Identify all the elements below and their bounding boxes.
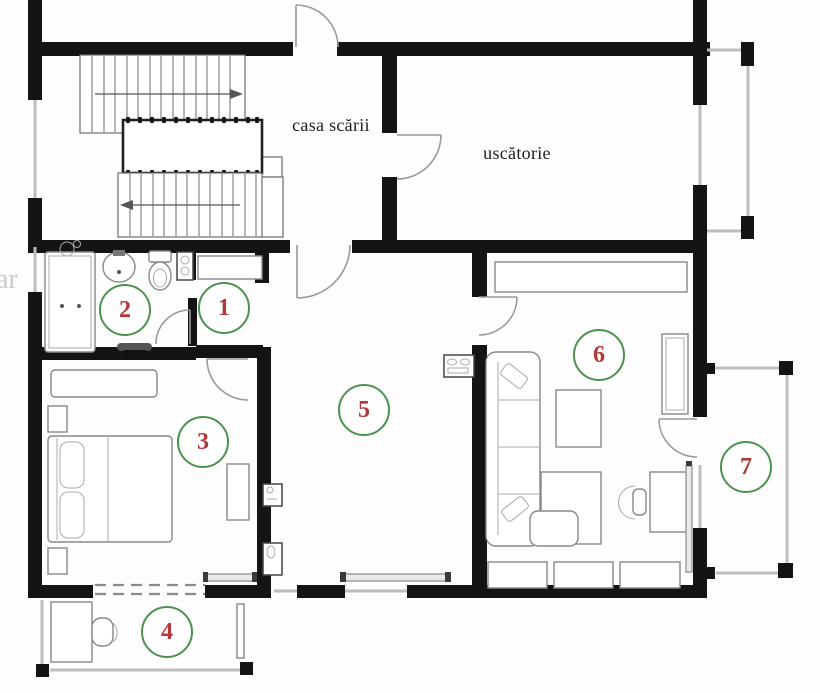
apartment-door — [297, 245, 350, 298]
shower-cabin — [45, 252, 95, 352]
room-number: 5 — [358, 397, 370, 424]
hall-radiator — [340, 572, 451, 582]
room-number: 4 — [161, 619, 173, 646]
storage-shelf — [198, 256, 262, 279]
room-badge-6: 6 — [573, 329, 625, 381]
wall-thermostat — [263, 543, 282, 575]
room-number: 2 — [119, 297, 131, 324]
dresser — [51, 370, 157, 397]
room-badge-4: 4 — [141, 606, 193, 658]
work-desk — [650, 472, 687, 532]
window-radiator — [488, 562, 547, 588]
entry-door — [296, 5, 338, 47]
window-radiator — [554, 562, 613, 588]
bedroom-door — [207, 359, 248, 400]
room-badge-1: 1 — [198, 282, 250, 334]
living-room-door — [479, 297, 517, 335]
bath-mat — [117, 343, 152, 351]
dashed-boundary — [95, 585, 205, 594]
living-room-furniture — [486, 262, 692, 588]
bedroom-radiator — [206, 574, 254, 581]
double-bed — [48, 436, 172, 542]
wall-radiator — [686, 466, 692, 572]
room-number: 6 — [593, 342, 605, 369]
balcony-top-right — [707, 42, 754, 239]
room-number: 3 — [197, 429, 209, 456]
corner-sofa — [486, 352, 578, 546]
room-number: 1 — [218, 295, 230, 322]
coffee-table — [556, 390, 601, 447]
room-number: 7 — [740, 454, 752, 481]
nightstand-top — [48, 406, 67, 432]
sink — [103, 252, 135, 282]
sideboard — [495, 262, 687, 292]
label-staircase: casa scării — [291, 112, 371, 139]
nightstand-bottom — [48, 548, 67, 574]
staircase — [80, 55, 283, 237]
desk-chair — [92, 618, 117, 646]
office-chair — [619, 486, 647, 519]
stair-handrail — [123, 120, 262, 173]
room-badge-3: 3 — [177, 416, 229, 468]
room-badge-7: 7 — [720, 441, 772, 493]
boiler — [177, 252, 193, 280]
toilet — [149, 251, 171, 290]
balcony-desk-area — [51, 602, 117, 662]
floor-plan-drawing — [0, 0, 820, 693]
watermark: ar — [0, 264, 18, 296]
room-badge-2: 2 — [99, 284, 151, 336]
label-drying-room: uscătorie — [455, 140, 579, 167]
wardrobe — [227, 464, 249, 520]
window-radiator — [620, 562, 680, 588]
floor-plan: casa scării uscătorie 1 2 3 4 5 6 7 ar — [0, 0, 820, 693]
tall-cabinet — [662, 334, 688, 414]
bathroom-door — [156, 310, 190, 344]
balcony-radiator — [237, 604, 244, 658]
desk — [51, 602, 92, 662]
wall-switch — [263, 484, 282, 506]
balcony-door — [659, 419, 697, 457]
bedroom-furniture — [48, 370, 257, 582]
staircase-door — [397, 135, 441, 179]
electric-panel — [444, 355, 474, 377]
room-badge-5: 5 — [338, 384, 390, 436]
